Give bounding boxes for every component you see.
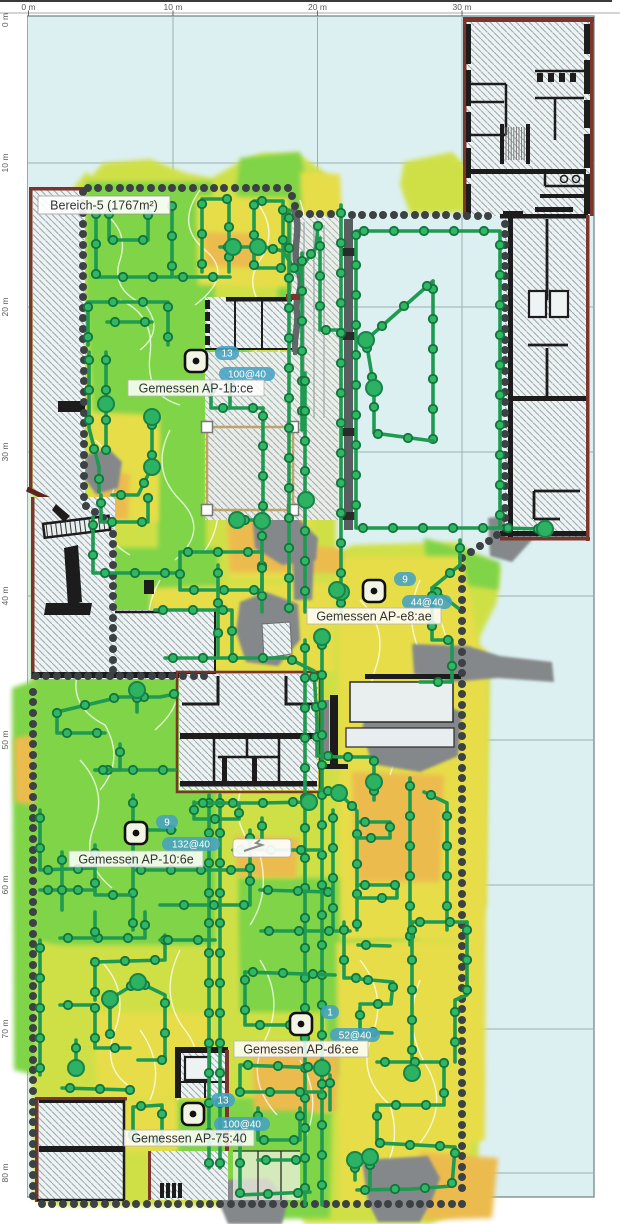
svg-text:0 m: 0 m bbox=[0, 13, 10, 27]
svg-text:100@40: 100@40 bbox=[228, 370, 266, 381]
svg-text:13: 13 bbox=[221, 349, 233, 360]
svg-text:10 m: 10 m bbox=[0, 154, 10, 173]
svg-text:Gemessen AP-d6:ee: Gemessen AP-d6:ee bbox=[243, 1043, 358, 1057]
svg-text:13: 13 bbox=[217, 1096, 229, 1107]
svg-text:100@40: 100@40 bbox=[223, 1120, 261, 1131]
svg-text:Gemessen AP-10:6e: Gemessen AP-10:6e bbox=[78, 853, 193, 867]
svg-text:40 m: 40 m bbox=[0, 587, 10, 606]
svg-text:20 m: 20 m bbox=[0, 298, 10, 317]
svg-text:70 m: 70 m bbox=[0, 1020, 10, 1039]
svg-text:Bereich-5 (1767m²): Bereich-5 (1767m²) bbox=[50, 199, 158, 213]
svg-text:9: 9 bbox=[402, 575, 408, 586]
svg-text:Gemessen AP-1b:ce: Gemessen AP-1b:ce bbox=[139, 382, 254, 396]
svg-text:80 m: 80 m bbox=[0, 1164, 10, 1183]
svg-text:Gemessen AP-75:40: Gemessen AP-75:40 bbox=[131, 1132, 246, 1146]
svg-text:50 m: 50 m bbox=[0, 731, 10, 750]
svg-text:1: 1 bbox=[327, 1008, 333, 1019]
svg-text:132@40: 132@40 bbox=[172, 840, 210, 851]
svg-text:9: 9 bbox=[164, 818, 170, 829]
svg-text:60 m: 60 m bbox=[0, 876, 10, 895]
svg-text:30 m: 30 m bbox=[0, 443, 10, 462]
svg-text:Gemessen AP-e8:ae: Gemessen AP-e8:ae bbox=[316, 610, 431, 624]
svg-text:44@40: 44@40 bbox=[411, 598, 444, 609]
svg-text:52@40: 52@40 bbox=[339, 1031, 372, 1042]
